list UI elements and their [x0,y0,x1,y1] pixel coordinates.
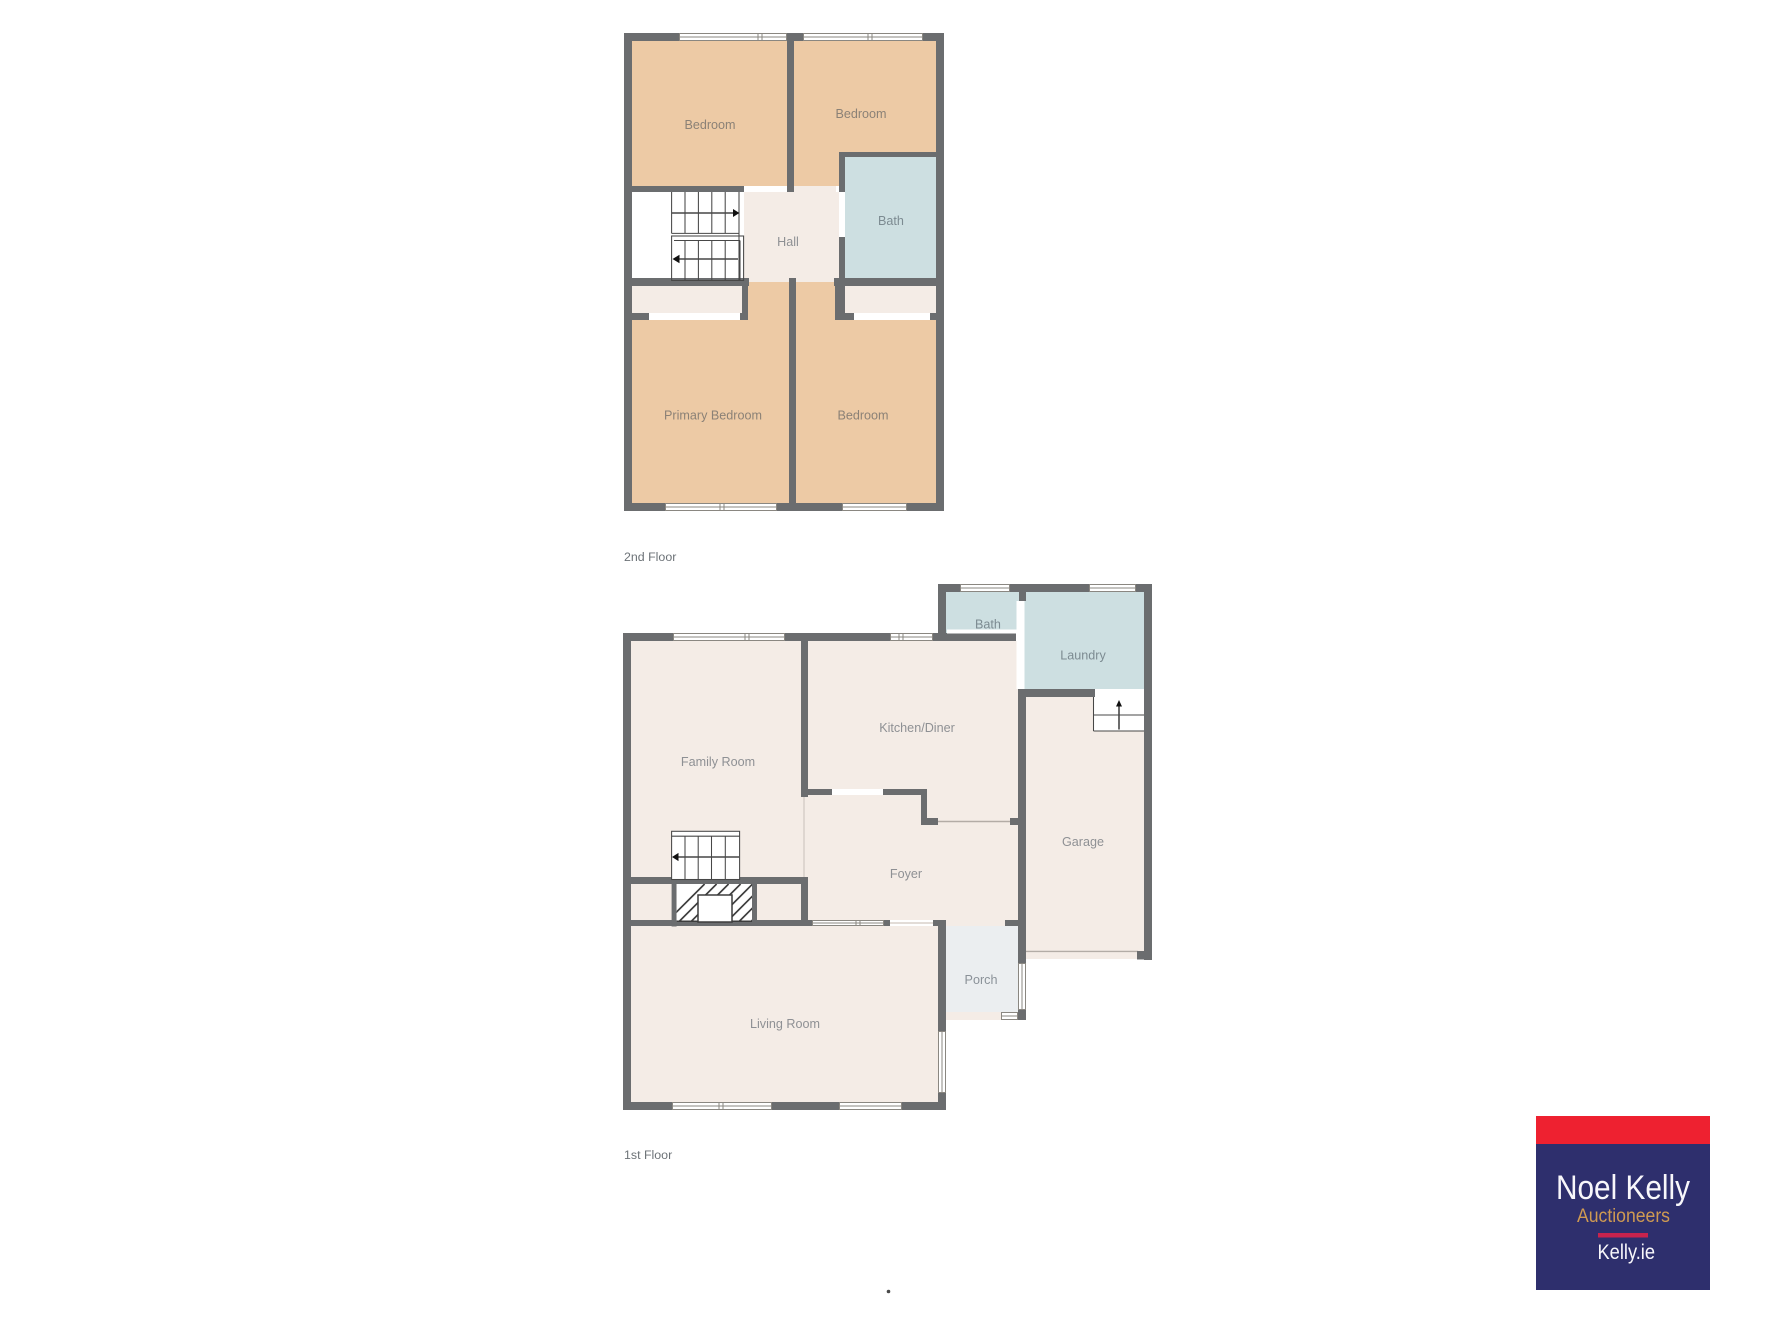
svg-text:Garage: Garage [1062,835,1104,849]
svg-text:Bath: Bath [975,618,1001,632]
svg-text:Foyer: Foyer [890,867,922,881]
svg-text:Laundry: Laundry [1060,649,1106,663]
svg-text:Noel Kelly: Noel Kelly [1556,1169,1690,1207]
svg-text:2nd Floor: 2nd Floor [624,550,676,564]
svg-text:Living Room: Living Room [750,1017,820,1031]
svg-text:Hall: Hall [777,235,799,249]
svg-text:Bedroom: Bedroom [837,409,888,423]
svg-text:Auctioneers: Auctioneers [1577,1206,1670,1227]
svg-text:Porch: Porch [965,973,998,987]
svg-text:Family Room: Family Room [681,755,755,769]
svg-text:Kitchen/Diner: Kitchen/Diner [879,721,955,735]
svg-text:1st Floor: 1st Floor [624,1148,672,1162]
svg-text:Bath: Bath [878,214,904,228]
svg-text:Kelly.ie: Kelly.ie [1598,1241,1656,1264]
svg-text:Primary Bedroom: Primary Bedroom [664,409,762,423]
svg-text:Bedroom: Bedroom [684,118,735,132]
svg-text:Bedroom: Bedroom [835,107,886,121]
